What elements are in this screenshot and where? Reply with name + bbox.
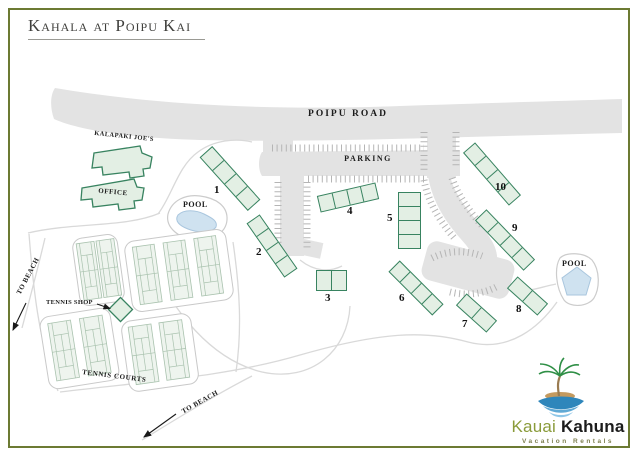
building-3 [316,270,347,291]
building-3-label: 3 [325,292,331,304]
logo-brand-first: Kauai [512,417,556,436]
poipu-road-label: POIPU ROAD [302,109,394,119]
building-segment [399,221,420,235]
building-10-label: 10 [495,181,506,193]
parking-label: PARKING [337,154,399,163]
building-9-label: 9 [512,222,518,234]
building-5-label: 5 [387,212,393,224]
building-6-label: 6 [399,292,405,304]
building-segment [399,207,420,221]
pool-left-label: POOL [183,200,208,209]
logo-palm-icon [538,358,584,417]
tennis-courts-group [39,228,235,392]
page-title: Kahala at Poipu Kai [28,16,205,40]
kalapaki-joes-building [92,146,152,178]
tennis-shop-label: TENNIS SHOP [46,299,93,306]
building-segment [361,184,378,202]
building-segment [399,193,420,207]
logo-tagline: Vacation Rentals [505,438,631,445]
building-segment [317,271,332,290]
logo-brand-second: Kahuna [561,417,625,436]
resort-map-graphic [0,0,640,457]
building-5 [398,192,421,249]
to-beach-left-arrow [13,303,26,330]
building-segment [399,235,420,248]
building-4-label: 4 [347,205,353,217]
building-8-label: 8 [516,303,522,315]
building-7-label: 7 [462,318,468,330]
building-2-label: 2 [256,246,262,258]
building-segment [332,271,346,290]
pool-right-label: POOL [562,259,587,268]
tennis-court-enclosure [71,233,125,307]
building-1-label: 1 [214,184,220,196]
tennis-court-enclosure [124,228,235,313]
logo-brand-name: Kauai Kahuna [505,417,631,437]
tennis-shop-arrow [97,304,110,309]
